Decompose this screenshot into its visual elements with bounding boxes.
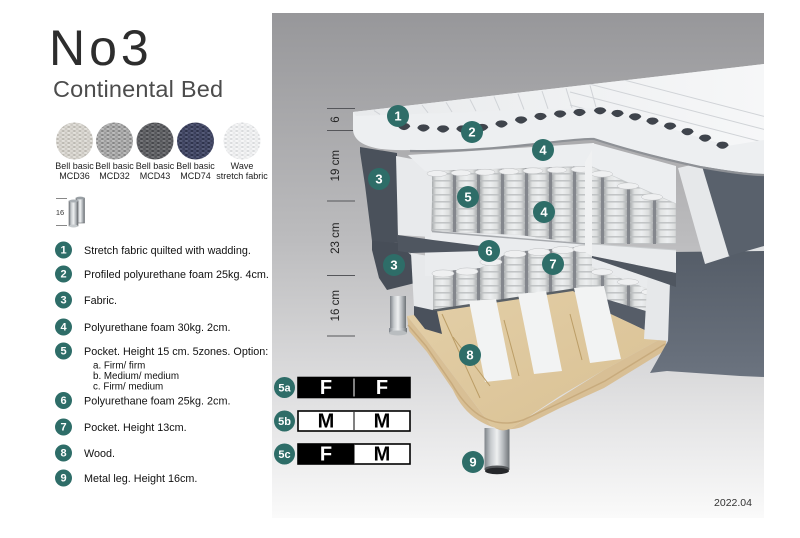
svg-text:6: 6 — [60, 395, 66, 407]
svg-text:6: 6 — [330, 116, 342, 122]
svg-text:9: 9 — [469, 455, 476, 470]
svg-text:Pocket. Height 15 cm. 5zones.: Pocket. Height 15 cm. 5zones. Option: — [84, 346, 268, 358]
svg-text:F: F — [320, 377, 332, 399]
svg-text:9: 9 — [60, 473, 66, 485]
svg-text:Bell basic: Bell basic — [136, 161, 175, 171]
svg-text:2: 2 — [60, 269, 66, 281]
svg-text:a. Firm/ firm: a. Firm/ firm — [93, 361, 145, 372]
svg-text:Polyurethane foam 30kg. 2cm.: Polyurethane foam 30kg. 2cm. — [84, 322, 230, 334]
svg-text:1: 1 — [394, 109, 401, 124]
svg-text:16 cm: 16 cm — [330, 290, 342, 321]
svg-text:F: F — [376, 377, 388, 399]
svg-text:5c: 5c — [278, 449, 290, 461]
svg-text:Pocket. Height 13cm.: Pocket. Height 13cm. — [84, 422, 187, 434]
svg-text:MCD74: MCD74 — [180, 171, 211, 181]
svg-text:c. Firm/ medium: c. Firm/ medium — [93, 382, 163, 393]
svg-text:Wood.: Wood. — [84, 448, 115, 460]
svg-text:5: 5 — [464, 190, 471, 205]
svg-text:Profiled polyurethane foam 25k: Profiled polyurethane foam 25kg. 4cm. — [84, 269, 269, 281]
svg-text:MCD36: MCD36 — [59, 171, 90, 181]
svg-text:M: M — [318, 411, 335, 433]
svg-text:MCD43: MCD43 — [140, 171, 171, 181]
svg-text:3: 3 — [375, 172, 382, 187]
svg-text:F: F — [320, 444, 332, 466]
svg-text:Bell basic: Bell basic — [176, 161, 215, 171]
svg-text:4: 4 — [60, 322, 67, 334]
svg-text:5a: 5a — [278, 383, 291, 395]
svg-text:6: 6 — [485, 244, 492, 259]
svg-text:2022.04: 2022.04 — [714, 497, 752, 509]
svg-text:5b: 5b — [278, 416, 291, 428]
svg-text:Wave: Wave — [231, 161, 254, 171]
svg-text:b. Medium/ medium: b. Medium/ medium — [93, 371, 179, 382]
svg-text:MCD32: MCD32 — [99, 171, 130, 181]
svg-text:3: 3 — [60, 295, 66, 307]
svg-text:8: 8 — [60, 448, 66, 460]
svg-text:8: 8 — [466, 348, 473, 363]
svg-text:16: 16 — [56, 208, 64, 217]
svg-text:Stretch fabric quilted with wa: Stretch fabric quilted with wadding. — [84, 245, 251, 257]
svg-text:3: 3 — [390, 258, 397, 273]
svg-text:4: 4 — [540, 205, 548, 220]
svg-text:No3: No3 — [49, 20, 153, 76]
svg-text:19 cm: 19 cm — [330, 150, 342, 181]
svg-text:Metal leg. Height 16cm.: Metal leg. Height 16cm. — [84, 473, 197, 485]
svg-text:Polyurethane foam 25kg. 2cm.: Polyurethane foam 25kg. 2cm. — [84, 396, 230, 408]
svg-text:M: M — [374, 411, 391, 433]
svg-text:23 cm: 23 cm — [330, 223, 342, 254]
svg-text:4: 4 — [539, 143, 547, 158]
svg-text:7: 7 — [549, 257, 556, 272]
svg-text:1: 1 — [60, 245, 66, 257]
svg-text:M: M — [374, 444, 391, 466]
svg-text:Continental Bed: Continental Bed — [53, 76, 223, 102]
svg-text:Fabric.: Fabric. — [84, 295, 117, 307]
svg-text:7: 7 — [60, 422, 66, 434]
svg-text:2: 2 — [468, 125, 475, 140]
svg-text:Bell basic: Bell basic — [95, 161, 134, 171]
svg-text:stretch fabric: stretch fabric — [216, 171, 268, 181]
svg-text:Bell basic: Bell basic — [55, 161, 94, 171]
svg-text:5: 5 — [60, 346, 66, 358]
